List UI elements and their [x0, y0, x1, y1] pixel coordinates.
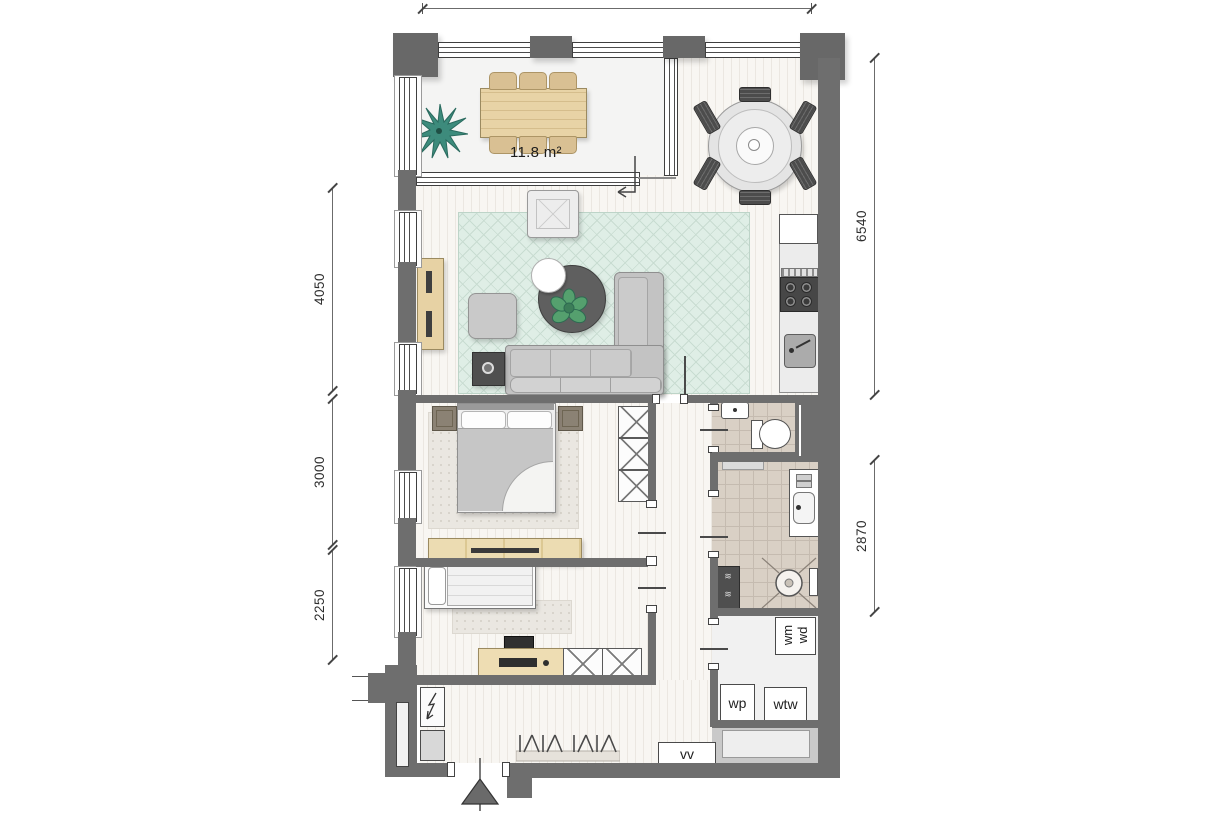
dim-line-left-3 [332, 550, 333, 660]
wall [385, 675, 656, 685]
wall [710, 668, 718, 727]
nightstand [432, 406, 457, 431]
nightstand-inner [562, 410, 579, 427]
burner-icon [785, 296, 796, 307]
door-post [708, 663, 719, 670]
armchair [527, 190, 579, 238]
electricity-icon [424, 691, 442, 725]
kitchen-sink [784, 334, 816, 368]
dim-line-right-2 [874, 460, 875, 612]
door-swing-tick [700, 429, 728, 431]
cooktop [780, 277, 819, 312]
dim-line-top [422, 8, 812, 9]
mouse-icon [543, 660, 549, 666]
floor-plan: 11.8 m² [0, 0, 1220, 813]
heat-recovery-unit: wtw [764, 687, 807, 721]
faucet-icon [796, 505, 801, 510]
wall [682, 395, 818, 403]
door-post [708, 551, 719, 558]
vanity-sink [793, 492, 815, 524]
double-bed [457, 403, 556, 513]
sofa-seat [505, 345, 664, 395]
pillow [461, 411, 506, 429]
dim-label: 6540 [854, 198, 870, 254]
radiator-mark: ≋ [717, 567, 739, 585]
door-post [502, 762, 510, 777]
dim-tick [352, 676, 368, 677]
dim-line-left-1 [332, 188, 333, 391]
wall [398, 518, 416, 570]
sideboard-handle-bottom [426, 311, 432, 337]
door-post [708, 404, 719, 411]
washer-dryer-unit: wm wd [775, 617, 816, 655]
sofa-seat-cushions [510, 349, 632, 377]
dining-chair [739, 87, 771, 102]
door-swing-tick [638, 587, 666, 589]
wall [818, 58, 840, 776]
wall [398, 170, 416, 214]
door-post [646, 556, 657, 566]
window-slot [396, 702, 409, 767]
meter-cupboard-box: vv [658, 742, 716, 765]
dim-line-left-2 [332, 399, 333, 545]
heat-pump-label: wp [729, 695, 747, 711]
wall [648, 403, 656, 507]
nightstand-inner [436, 410, 453, 427]
washer-dryer-label: wm wd [780, 619, 810, 651]
window [399, 344, 417, 394]
toiletries [796, 474, 812, 481]
balcony-chair [519, 72, 547, 90]
door-post [680, 394, 688, 404]
hall-cabinet [420, 730, 445, 761]
mattress [447, 566, 533, 606]
door-post [708, 618, 719, 625]
pillow [507, 411, 552, 429]
central-hall-floor [656, 403, 712, 685]
dim-label: 4050 [312, 261, 328, 317]
shower-control [809, 568, 818, 596]
balcony-glass-front [416, 172, 640, 186]
wall [712, 608, 818, 616]
wall-stub [507, 778, 532, 798]
heat-pump-unit: wp [720, 684, 755, 721]
dining-table-hub [748, 139, 760, 151]
duvet [458, 428, 553, 511]
meter-cupboard-label: vv [680, 746, 694, 762]
balcony-door-arrow [608, 152, 642, 200]
nightstand [558, 406, 583, 431]
bath-radiator: ≋ ≋ [716, 566, 740, 610]
balcony-glass-side [664, 58, 678, 176]
wall [398, 262, 416, 346]
wall [648, 610, 656, 685]
vanity [789, 469, 819, 537]
pouf [468, 293, 517, 339]
window [399, 568, 417, 636]
meter-cupboard [420, 687, 445, 727]
duvet-fold [502, 461, 553, 511]
sideboard [417, 258, 444, 350]
balcony-door-track [638, 177, 676, 179]
window [438, 42, 532, 58]
faucet-icon [789, 348, 794, 353]
lamp-icon [482, 362, 494, 374]
plant-icon [547, 286, 591, 330]
armchair-cushion [536, 199, 570, 229]
coat-rack [516, 732, 620, 762]
window [399, 212, 417, 266]
window [572, 42, 665, 58]
dim-label: 3000 [312, 444, 328, 500]
faucet-arrow [796, 339, 811, 348]
door-swing-tick [700, 536, 728, 538]
balcony-chair [489, 72, 517, 90]
dresser-handle [471, 548, 539, 553]
wall [416, 395, 656, 403]
heat-recovery-label: wtw [773, 696, 797, 712]
headboard [458, 404, 554, 410]
wall [712, 720, 818, 728]
door-swing-tick [700, 648, 728, 650]
toilet-sink [721, 402, 749, 419]
balcony-area-label: 11.8 m² [510, 144, 600, 161]
window [705, 42, 802, 58]
kitchen-tall-cabinet [779, 214, 818, 244]
wall-pillar [530, 36, 572, 58]
burner-icon [801, 282, 812, 293]
burner-icon [785, 282, 796, 293]
dim-tick [352, 700, 368, 701]
entrance-marker [460, 758, 500, 812]
window [399, 472, 417, 522]
door-leaf [684, 356, 686, 398]
door-post [646, 605, 657, 613]
balcony-table [480, 88, 587, 138]
burner-icon [801, 296, 812, 307]
dining-chair [739, 190, 771, 205]
toiletries [796, 481, 812, 488]
wall [398, 390, 416, 474]
toilet-bowl [759, 419, 791, 449]
shaft-gap [799, 405, 801, 456]
sofa-back-cushions [510, 377, 662, 393]
radiator-mark: ≋ [717, 585, 739, 603]
door-post [708, 490, 719, 497]
door-post [447, 762, 455, 777]
dim-label: 2250 [312, 577, 328, 633]
closet-inner [722, 730, 810, 758]
sideboard-handle-top [426, 271, 432, 293]
window [399, 77, 417, 175]
dim-line-right-1 [874, 58, 875, 395]
wall-pillar [393, 33, 438, 77]
single-bed [424, 562, 536, 609]
lamp-table [472, 352, 505, 386]
wall-pillar [663, 36, 705, 58]
wall [507, 763, 840, 778]
door-post [646, 500, 657, 508]
pillow [428, 567, 446, 605]
balcony-chair [549, 72, 577, 90]
keyboard-icon [499, 658, 537, 667]
wall [416, 558, 648, 567]
door-swing-tick [638, 532, 666, 534]
faucet-icon [733, 408, 737, 412]
kitchen-drawer-strip [781, 268, 818, 277]
dim-label: 2870 [854, 508, 870, 564]
desk [478, 648, 564, 678]
